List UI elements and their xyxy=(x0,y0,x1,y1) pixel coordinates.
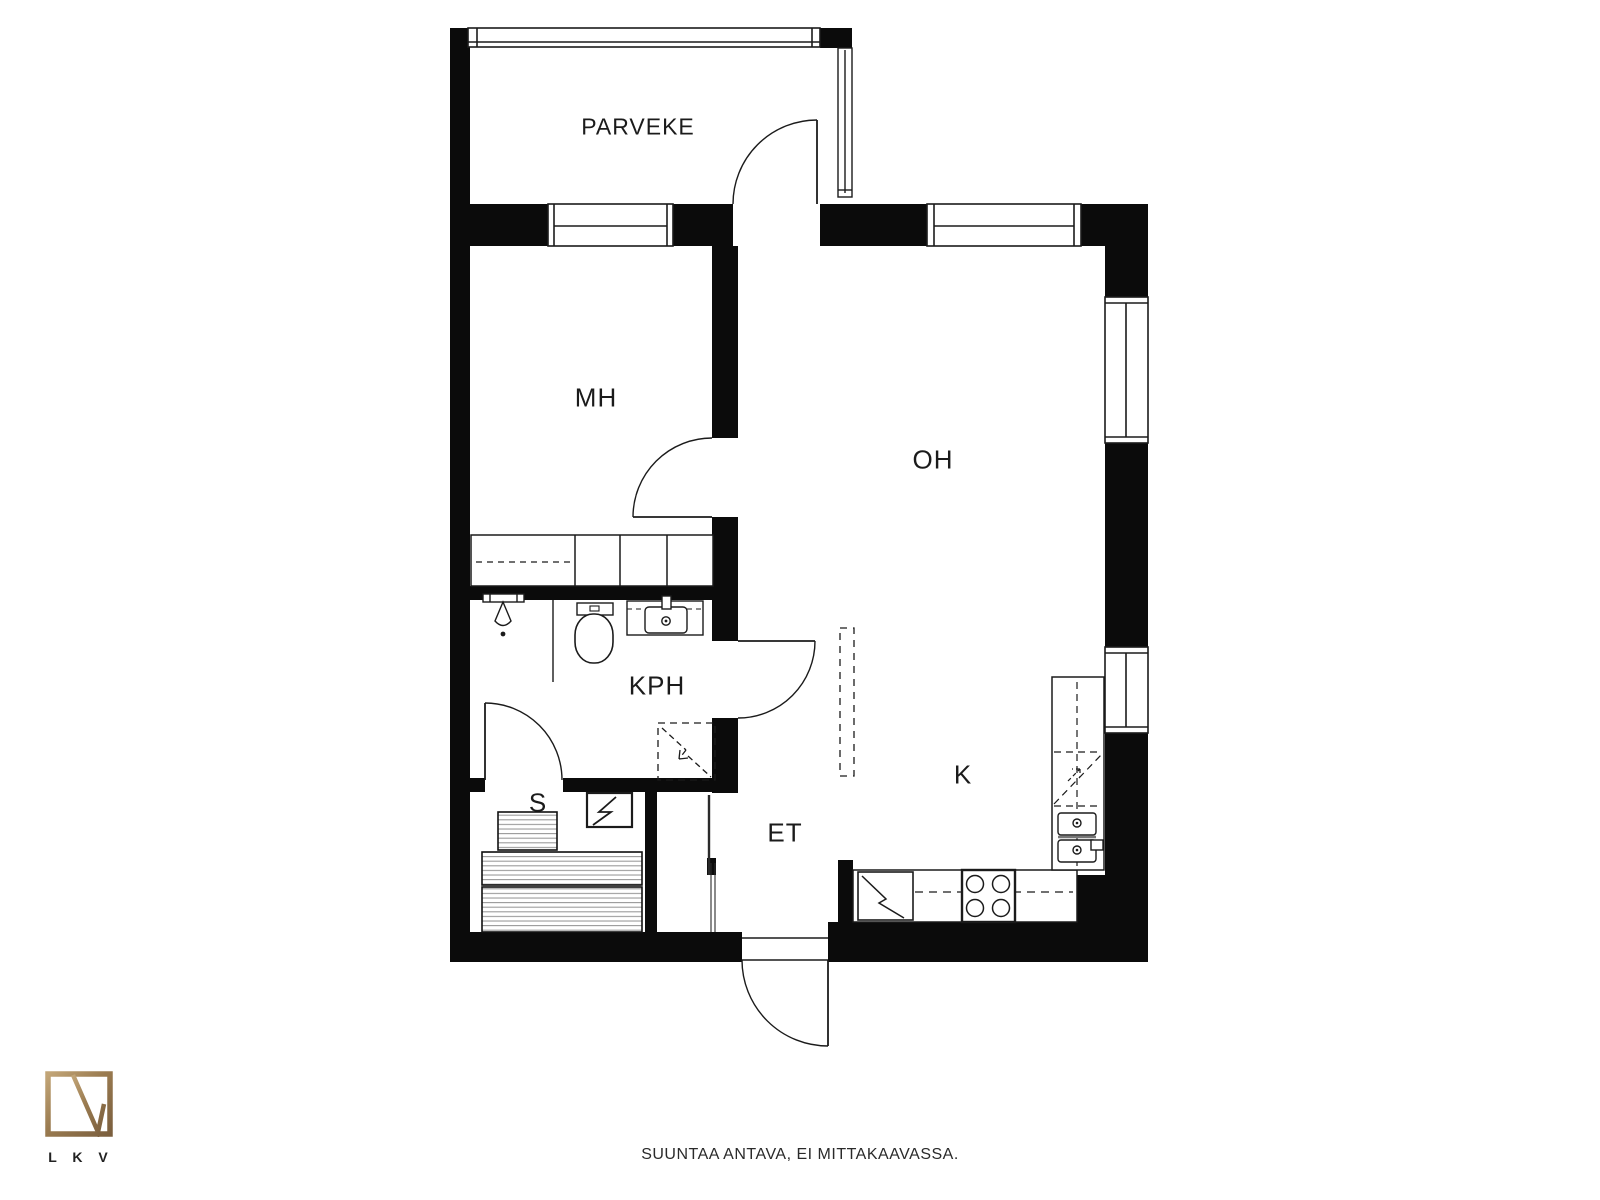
door-mh xyxy=(633,438,712,517)
window-right-upper xyxy=(1105,297,1148,443)
balcony-glazing xyxy=(838,48,852,197)
balcony-railing xyxy=(468,28,820,47)
room-label-et: ET xyxy=(767,818,802,849)
duct-reservation xyxy=(840,628,854,776)
stove-icon xyxy=(962,870,1015,922)
sauna-benches xyxy=(482,812,642,932)
door-entrance xyxy=(742,938,828,1046)
toilet-icon xyxy=(575,603,613,663)
window-oh-top xyxy=(927,204,1081,246)
room-label-parveke: PARVEKE xyxy=(581,114,695,141)
window-mh xyxy=(548,204,673,246)
dishwasher-icon xyxy=(858,872,913,920)
room-label-k: K xyxy=(954,760,972,791)
footer-disclaimer: SUUNTAA ANTAVA, EI MITTAKAAVASSA. xyxy=(641,1146,959,1164)
closet-mh xyxy=(471,535,713,586)
room-label-mh: MH xyxy=(575,383,617,414)
room-label-oh: OH xyxy=(913,445,954,476)
shower-icon xyxy=(483,594,553,682)
room-label-s: S xyxy=(529,788,547,819)
door-balcony xyxy=(733,120,817,204)
lkv-logo-icon xyxy=(45,1071,113,1137)
floor-plan-drawing xyxy=(0,0,1600,1200)
room-label-kph: KPH xyxy=(629,671,685,702)
sauna-heater-icon xyxy=(587,793,632,827)
door-kph xyxy=(738,641,815,718)
lkv-logo-caption: L K V xyxy=(48,1149,114,1165)
floor-plan: PARVEKE MH OH KPH S ET K L K V SUUNTAA A… xyxy=(0,0,1600,1200)
door-sauna xyxy=(485,703,562,780)
window-right-lower xyxy=(1105,647,1148,733)
lkv-logo xyxy=(45,1071,113,1137)
sink-vanity-icon xyxy=(627,596,703,635)
washer-reservation xyxy=(658,723,715,780)
